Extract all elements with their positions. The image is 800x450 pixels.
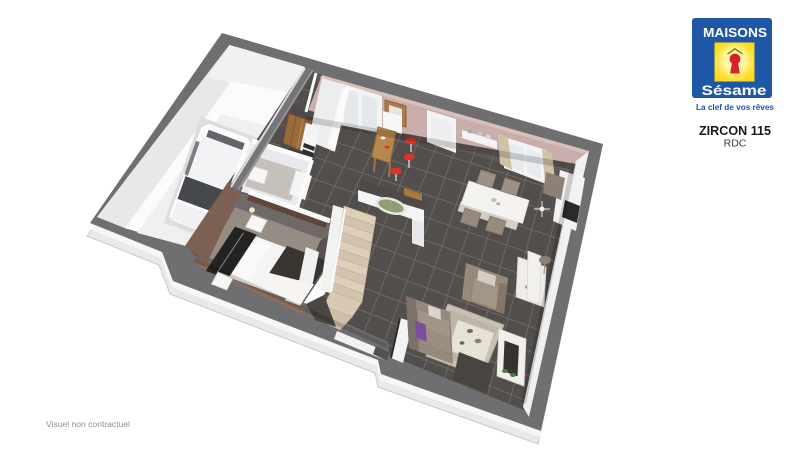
svg-text:La clef de vos rêves: La clef de vos rêves	[696, 102, 774, 112]
svg-text:Sésame: Sésame	[702, 82, 767, 98]
svg-text:ZIRCON 115: ZIRCON 115	[699, 124, 771, 138]
svg-text:RDC: RDC	[724, 138, 747, 150]
svg-text:MAISONS: MAISONS	[703, 25, 767, 40]
svg-text:Visuel non contractuel: Visuel non contractuel	[46, 420, 130, 429]
